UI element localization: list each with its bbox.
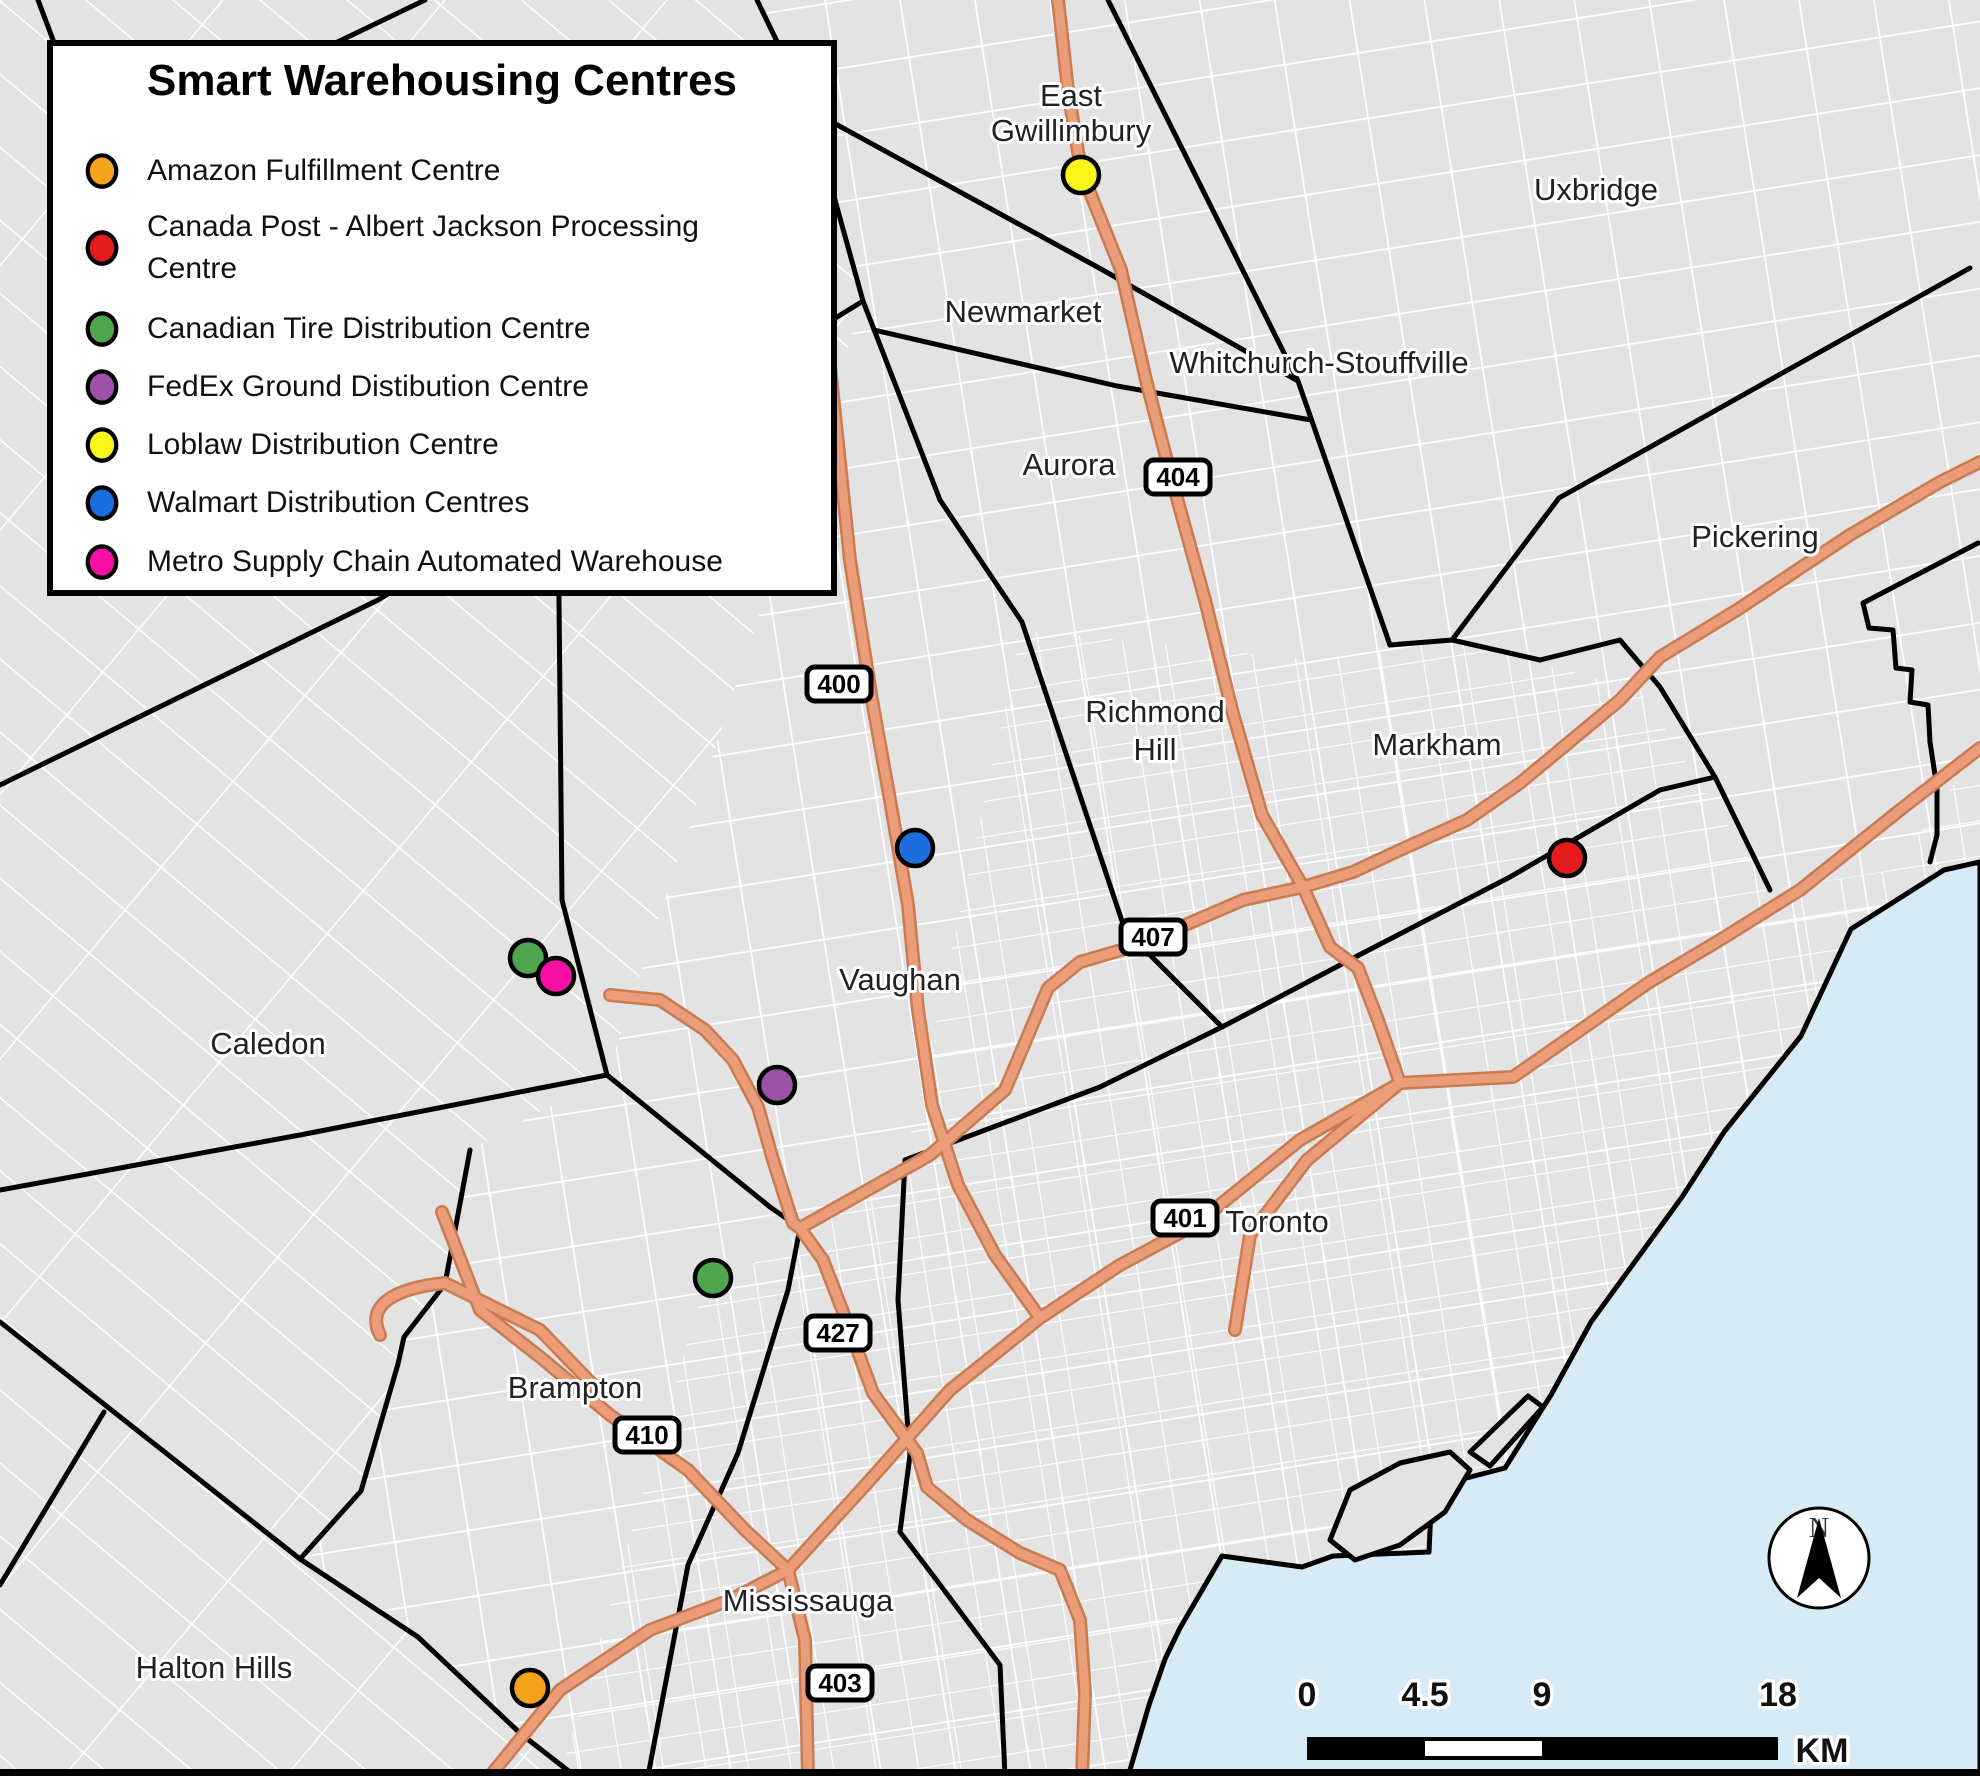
city-label-pickering: Pickering <box>1691 519 1819 554</box>
legend-item-label: Metro Supply Chain Automated Warehouse <box>147 541 723 583</box>
city-label-east-gwillimbury-2: Gwillimbury <box>991 113 1152 148</box>
city-label-mississauga: Mississauga <box>723 1583 894 1618</box>
legend-item-label: Amazon Fulfillment Centre <box>147 150 500 192</box>
legend-item-canadian-tire: Canadian Tire Distribution Centre <box>83 308 591 350</box>
city-label-markham: Markham <box>1372 727 1501 762</box>
legend-dot-canadian-tire-icon <box>83 310 121 348</box>
svg-text:410: 410 <box>625 1420 668 1450</box>
legend-item-fedex: FedEx Ground Distibution Centre <box>83 366 589 408</box>
legend-item-label: Walmart Distribution Centres <box>147 482 529 524</box>
scale-bar-segment-white <box>1425 1741 1542 1756</box>
marker-walmart <box>897 830 933 866</box>
marker-metro <box>538 958 574 994</box>
marker-canada-post <box>1549 840 1585 876</box>
legend-item-label-line1: Canada Post - Albert Jackson Processing <box>147 206 699 248</box>
city-label-aurora: Aurora <box>1022 447 1116 482</box>
map-frame-bottom <box>0 1769 1980 1776</box>
legend-dot-walmart-icon <box>83 484 121 522</box>
highway-shield-427: 427 <box>806 1316 870 1350</box>
city-label-toronto: Toronto <box>1225 1204 1328 1239</box>
svg-text:403: 403 <box>818 1668 861 1698</box>
city-label-halton-hills: Halton Hills <box>136 1650 293 1685</box>
legend-panel: Smart Warehousing Centres Amazon Fulfill… <box>47 40 837 596</box>
legend-item-label: Canadian Tire Distribution Centre <box>147 308 591 350</box>
city-label-richmond-hill-2: Hill <box>1133 732 1176 767</box>
scale-tick-4-5: 4.5 <box>1401 1676 1448 1714</box>
north-arrow: N <box>1769 1508 1869 1608</box>
legend-item-label: FedEx Ground Distibution Centre <box>147 366 589 408</box>
city-label-caledon: Caledon <box>210 1026 325 1061</box>
highway-shield-404: 404 <box>1146 460 1210 494</box>
scale-tick-18: 18 <box>1759 1676 1797 1714</box>
marker-loblaw <box>1063 157 1099 193</box>
highway-shield-410: 410 <box>615 1418 679 1452</box>
legend-item-label-line2: Centre <box>147 248 699 290</box>
svg-text:427: 427 <box>816 1318 859 1348</box>
city-label-newmarket: Newmarket <box>945 294 1102 329</box>
legend-item-amazon: Amazon Fulfillment Centre <box>83 150 500 192</box>
highway-shield-403: 403 <box>808 1666 872 1700</box>
legend-title: Smart Warehousing Centres <box>53 56 831 106</box>
scale-bar-track <box>1307 1737 1778 1760</box>
legend-dot-canada-post-icon <box>83 229 121 267</box>
highway-shield-407: 407 <box>1121 920 1185 954</box>
legend-item-loblaw: Loblaw Distribution Centre <box>83 424 499 466</box>
marker-amazon <box>512 1670 548 1706</box>
svg-text:404: 404 <box>1156 462 1200 492</box>
legend-item-walmart: Walmart Distribution Centres <box>83 482 529 524</box>
legend-item-label: Loblaw Distribution Centre <box>147 424 499 466</box>
legend-item-canada-post: Canada Post - Albert Jackson Processing … <box>83 206 699 290</box>
city-label-vaughan: Vaughan <box>839 962 961 997</box>
marker-fedex <box>759 1067 795 1103</box>
legend-dot-loblaw-icon <box>83 426 121 464</box>
highway-shield-401: 401 <box>1153 1201 1217 1235</box>
legend-item-metro: Metro Supply Chain Automated Warehouse <box>83 541 723 583</box>
legend-dot-amazon-icon <box>83 152 121 190</box>
legend-dot-fedex-icon <box>83 368 121 406</box>
city-label-east-gwillimbury-1: East <box>1040 78 1102 113</box>
highway-shield-400: 400 <box>807 667 871 701</box>
marker-canadian-tire-south <box>695 1260 731 1296</box>
city-label-richmond-hill-1: Richmond <box>1085 694 1225 729</box>
svg-text:401: 401 <box>1163 1203 1206 1233</box>
legend-dot-metro-icon <box>83 543 121 581</box>
scale-tick-0: 0 <box>1298 1676 1317 1714</box>
scale-unit-label: KM <box>1796 1732 1849 1770</box>
svg-text:407: 407 <box>1131 922 1174 952</box>
scale-tick-9: 9 <box>1533 1676 1552 1714</box>
city-label-uxbridge: Uxbridge <box>1534 172 1658 207</box>
city-label-whitchurch-stouffville: Whitchurch-Stouffville <box>1169 345 1468 380</box>
svg-text:400: 400 <box>817 669 860 699</box>
city-label-brampton: Brampton <box>508 1370 642 1405</box>
